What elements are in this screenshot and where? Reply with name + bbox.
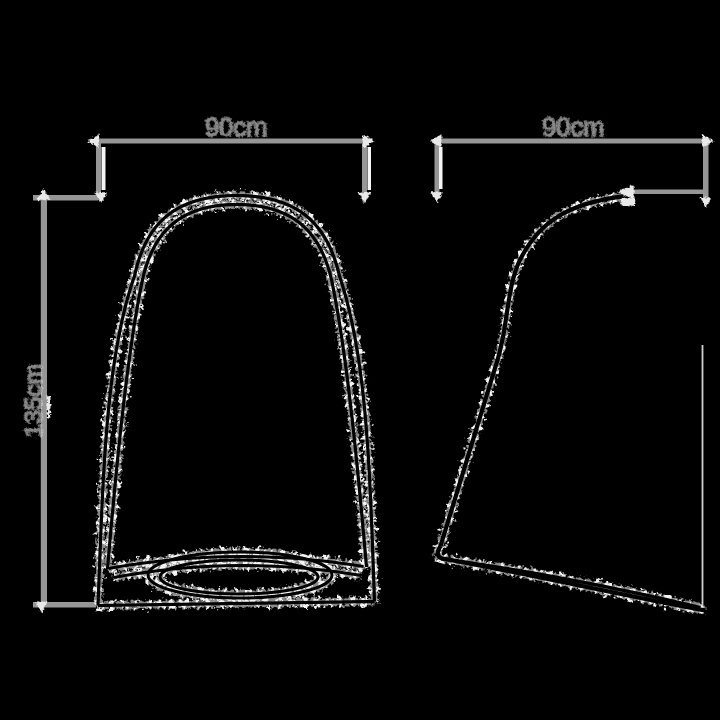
svg-text:135cm: 135cm (21, 364, 48, 438)
svg-text:90cm: 90cm (205, 114, 267, 142)
svg-text:90cm: 90cm (542, 114, 604, 142)
